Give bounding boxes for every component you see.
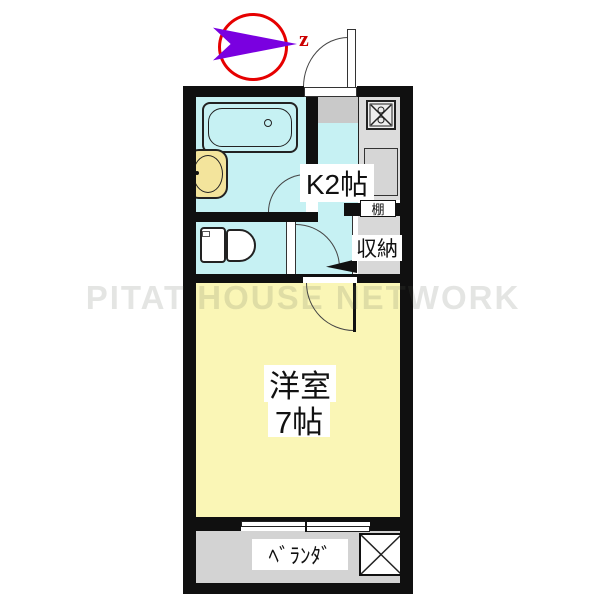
bathtub-inner [208, 108, 292, 147]
wall-window-right [370, 517, 400, 531]
floorplan: z [0, 0, 600, 600]
genkan-floor [318, 97, 358, 123]
wall-window-left [196, 517, 241, 531]
entrance-door-swing-arc [303, 37, 348, 87]
watermark-text: PITAT HOUSE NETWORK [78, 281, 528, 315]
veranda-label: ﾍﾞﾗﾝﾀﾞ [252, 539, 348, 570]
entrance-door-leaf [347, 29, 356, 88]
stove-icon [366, 100, 396, 130]
toilet-handle [202, 231, 210, 237]
wall-bottom [183, 583, 413, 594]
wall-bath-toilet [183, 212, 318, 222]
toilet-door [286, 222, 296, 274]
main-room-label-line2: 7帖 [268, 401, 330, 437]
wall-right [400, 86, 413, 594]
north-label: z [299, 26, 309, 52]
closet-label: 収納 [352, 235, 402, 261]
veranda-equipment-box-icon [359, 533, 403, 576]
shelf-label: 棚 [360, 200, 396, 217]
kitchen-label: K2帖 [300, 164, 374, 202]
wall-doorway-lintel [303, 274, 357, 277]
sliding-window-pane-left [241, 521, 307, 527]
wall-left [183, 86, 196, 594]
sliding-window-center-tick [305, 517, 307, 532]
entrance-threshold [304, 87, 357, 97]
wall-top-left [183, 86, 304, 97]
sliding-window-pane-right [305, 526, 370, 532]
bathtub-drain-icon [264, 119, 272, 127]
